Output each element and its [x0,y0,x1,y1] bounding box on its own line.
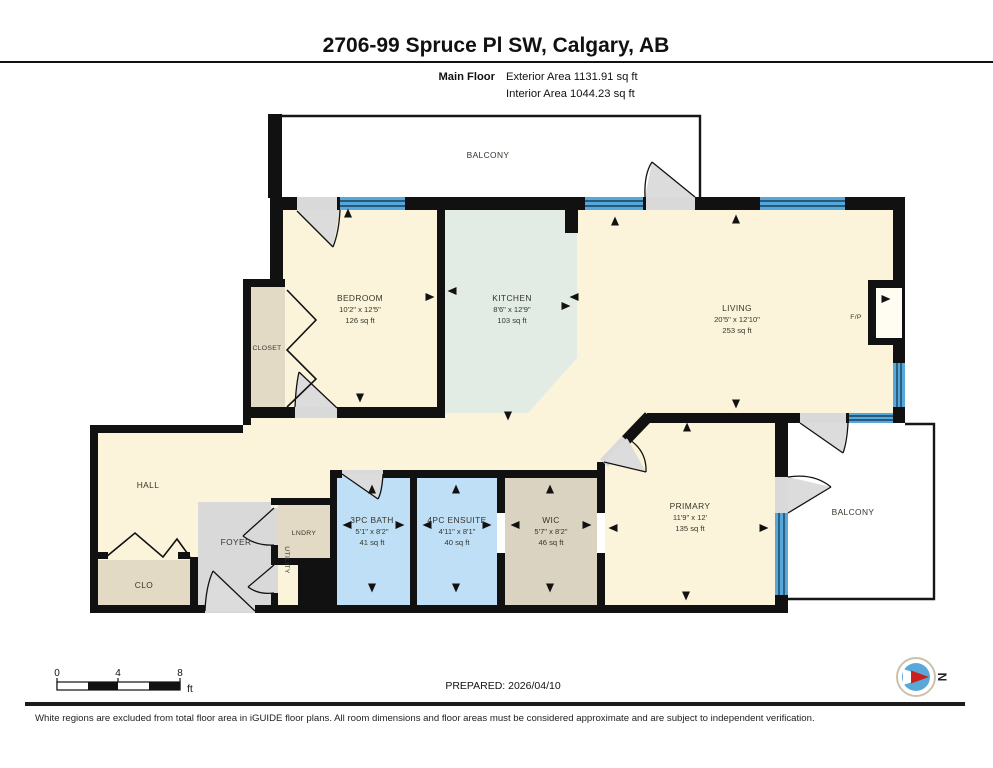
living-label: LIVING [722,303,752,313]
footer-disclaimer: White regions are excluded from total fl… [35,713,815,724]
laundry-label: LNDRY [292,530,317,537]
header-divider [0,61,993,63]
room-foyer-floor [198,502,271,605]
closet-label: CLOSET [253,345,282,352]
scale-tick-4: 4 [115,668,121,679]
wic-area: 46 sq ft [539,538,565,547]
interior-area-label: Interior Area 1044.23 sq ft [506,88,636,100]
footer-divider [25,702,965,706]
primary-area: 135 sq ft [675,524,705,533]
primary-dims: 11'9" x 12' [673,513,708,522]
kitchen-area: 103 sq ft [497,316,527,325]
bedroom-area: 126 sq ft [345,316,375,325]
bath-label: 3PC BATH [350,515,394,525]
bath-area: 41 sq ft [360,538,386,547]
living-dims: 20'5" x 12'10" [714,315,760,324]
floor-label: Main Floor [438,71,495,83]
fireplace [868,280,905,345]
prepared-date: PREPARED: 2026/04/10 [445,680,561,692]
primary-label: PRIMARY [670,501,711,511]
bedroom-label: BEDROOM [337,293,383,303]
scale-tick-8: 8 [177,668,183,679]
floor-plan-page: 2706-99 Spruce Pl SW, Calgary, AB Main F… [0,0,993,768]
scale-bar: 0 4 8 ft [54,668,193,695]
clo-label: CLO [135,580,154,590]
ensuite-label: 4PC ENSUITE [427,515,486,525]
bedroom-dims: 10'2" x 12'5" [339,305,381,314]
floor-plan-canvas: 2706-99 Spruce Pl SW, Calgary, AB Main F… [0,0,993,768]
exterior-area-label: Exterior Area 1131.91 sq ft [506,71,639,83]
scale-tick-0: 0 [54,668,60,679]
wic-dims: 5'7" x 8'2" [534,527,568,536]
wic-label: WIC [542,515,559,525]
hall-label: HALL [137,480,160,490]
foyer-label: FOYER [221,537,252,547]
ensuite-dims: 4'11" x 8'1" [439,527,476,536]
compass-north-label: N [935,673,949,682]
living-area: 253 sq ft [722,326,752,335]
scale-unit: ft [187,683,193,695]
page-title: 2706-99 Spruce Pl SW, Calgary, AB [323,34,670,57]
kitchen-label: KITCHEN [492,293,532,303]
kitchen-dims: 8'6" x 12'9" [493,305,531,314]
bath-dims: 5'1" x 8'2" [355,527,389,536]
utility-label: UTILITY [283,546,290,574]
balcony-right-label: BALCONY [832,507,875,517]
fireplace-label: F/P [850,314,862,321]
compass-icon: N [897,658,949,696]
balcony-top-label: BALCONY [467,150,510,160]
ensuite-area: 40 sq ft [445,538,471,547]
